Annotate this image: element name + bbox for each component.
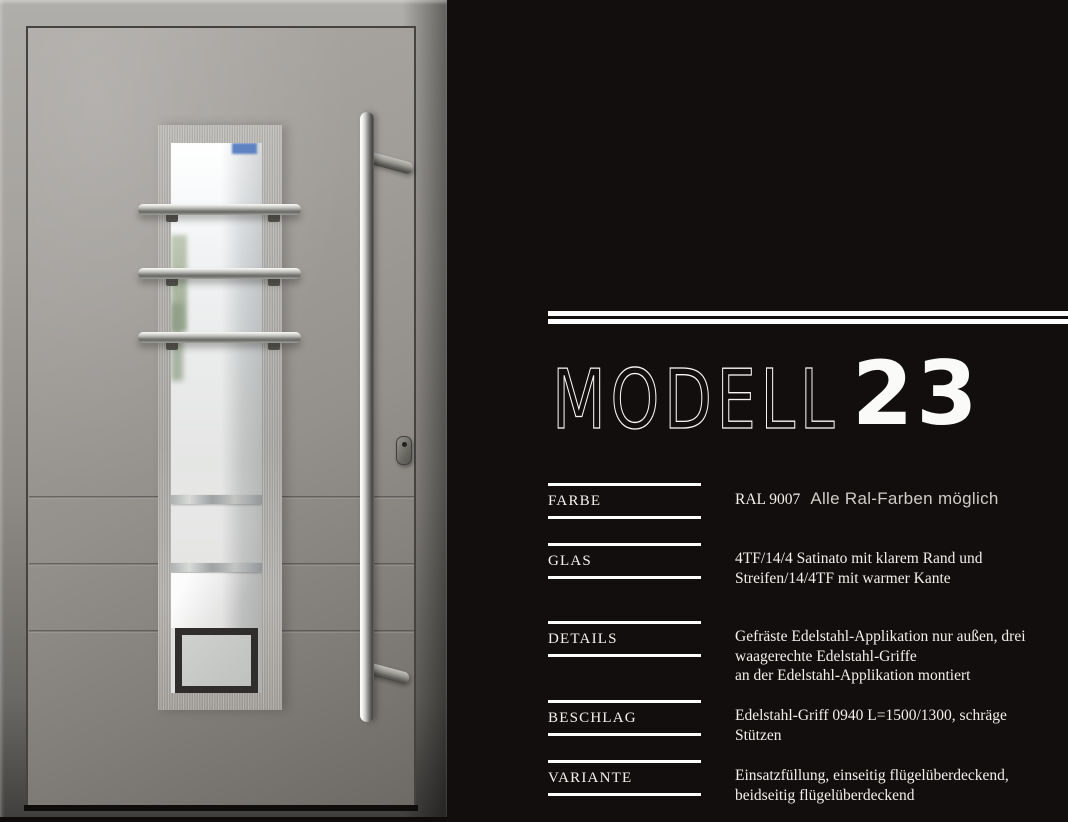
lock-cylinder: [396, 436, 412, 465]
spec-label: FARBE: [548, 483, 701, 519]
model-number: 23: [852, 350, 980, 438]
glass-blue-reflection: [232, 143, 257, 154]
spec-value: Edelstahl-Griff 0940 L=1500/1300, schräg…: [735, 706, 1068, 745]
steel-grip-bar: [138, 268, 301, 279]
spec-row-details: DETAILS Gefräste Edelstahl-Applikation n…: [548, 621, 1068, 657]
spec-value: Gefräste Edelstahl-Applikation nur außen…: [735, 627, 1068, 686]
spec-label: GLAS: [548, 543, 701, 579]
spec-label: BESCHLAG: [548, 700, 701, 736]
steel-grip-bar: [138, 204, 301, 215]
clear-glass-stripe: [171, 563, 262, 572]
spec-row-farbe: FARBE RAL 9007Alle Ral-Farben möglich: [548, 483, 1068, 519]
steel-grip-bar: [138, 332, 301, 343]
door-photo: [0, 0, 447, 822]
spec-value-code: RAL 9007: [735, 491, 800, 508]
double-rule-bottom: [548, 319, 1068, 324]
clear-glass-stripe: [171, 495, 262, 504]
double-rule-top: [548, 311, 1068, 316]
glass-highlight: [171, 573, 262, 628]
model-title: MODELL: [552, 360, 839, 442]
glass-dark-frame: [175, 628, 258, 693]
spec-row-variante: VARIANTE Einsatzfüllung, einseitig flüge…: [548, 760, 1068, 796]
spec-row-beschlag: BESCHLAG Edelstahl-Griff 0940 L=1500/130…: [548, 700, 1068, 736]
spec-value: Einsatzfüllung, einseitig flügelüberdeck…: [735, 766, 1068, 805]
spec-label: DETAILS: [548, 621, 701, 657]
pull-handle-bar: [360, 112, 374, 722]
spec-value: 4TF/14/4 Satinato mit klarem Rand und St…: [735, 549, 1068, 588]
page: MODELL 23 FARBE RAL 9007Alle Ral-Farben …: [0, 0, 1068, 822]
spec-label: VARIANTE: [548, 760, 701, 796]
keyhole: [402, 442, 407, 447]
threshold-shadow: [0, 817, 447, 822]
spec-value: RAL 9007Alle Ral-Farben möglich: [735, 489, 1068, 510]
spec-value-note: Alle Ral-Farben möglich: [810, 489, 998, 508]
door-bottom-edge: [24, 805, 418, 811]
spec-row-glas: GLAS 4TF/14/4 Satinato mit klarem Rand u…: [548, 543, 1068, 579]
glass-panel: [171, 143, 262, 693]
